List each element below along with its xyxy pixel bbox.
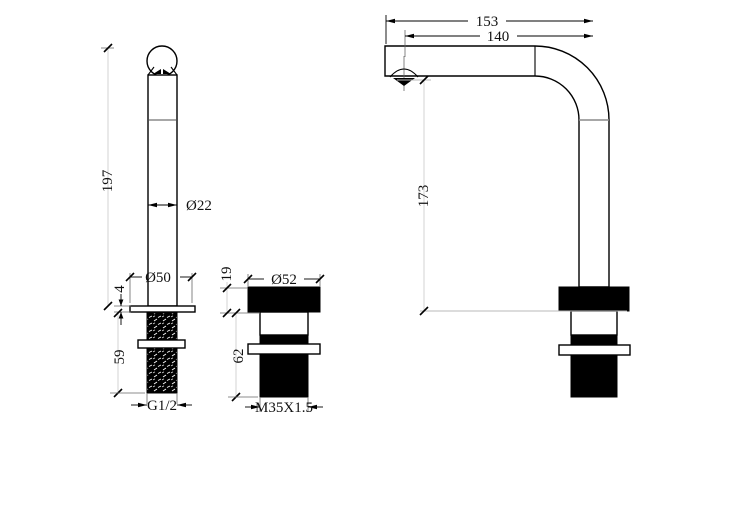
dim140-arrow-right — [584, 34, 593, 38]
dim153-arrow-right — [584, 19, 593, 23]
dim153-arrow-left — [386, 19, 395, 23]
ball-top — [147, 46, 177, 76]
spout-base-lock-ring — [559, 345, 630, 355]
dim-outlet-reach: 140 — [487, 29, 510, 45]
dim-base-thread: M35X1.5 — [255, 400, 313, 416]
spout-base-neck — [571, 311, 617, 335]
base-lock-ring — [248, 344, 320, 354]
spout-body-view: 197 Ø22 Ø50 4 59 G1/2 — [100, 44, 212, 414]
base-cap — [248, 287, 320, 312]
dim-cap-height: 19 — [219, 267, 235, 282]
faucet-dimension-drawing: 197 Ø22 Ø50 4 59 G1/2 — [0, 0, 734, 527]
dim-body-height: 197 — [100, 169, 116, 192]
dim-below-counter-height: 62 — [231, 349, 247, 364]
dim-overall-reach: 153 — [476, 14, 499, 30]
dim-shank-length: 59 — [112, 350, 128, 365]
dim-outlet-height: 173 — [416, 185, 432, 208]
spout-profile-view: 153 140 173 — [385, 14, 630, 397]
base-flange — [130, 306, 195, 312]
g12-arrow-left — [138, 403, 147, 407]
threaded-shank — [147, 313, 177, 393]
dim-flange-diameter: Ø50 — [145, 270, 171, 286]
aerator-outlet-cone — [393, 78, 415, 86]
spout-base-cap — [559, 287, 629, 311]
shank-nut — [138, 340, 185, 348]
spout-base-threaded-body — [571, 335, 617, 397]
g12-arrow-right — [177, 403, 186, 407]
dim4-arrow-up — [119, 312, 124, 319]
mount-base-view: Ø52 19 62 M35X1.5 — [219, 267, 324, 417]
dim140-arrow-left — [405, 34, 414, 38]
spout-outline — [385, 46, 609, 287]
dim4-arrow-down — [119, 300, 124, 307]
dim-body-diameter: Ø22 — [186, 198, 212, 214]
technical-drawing-canvas: 197 Ø22 Ø50 4 59 G1/2 — [0, 0, 734, 527]
dim-flange-thickness: 4 — [112, 285, 128, 293]
dim-shank-thread: G1/2 — [147, 398, 177, 414]
dim-cap-diameter: Ø52 — [271, 272, 297, 288]
base-neck — [260, 312, 308, 335]
